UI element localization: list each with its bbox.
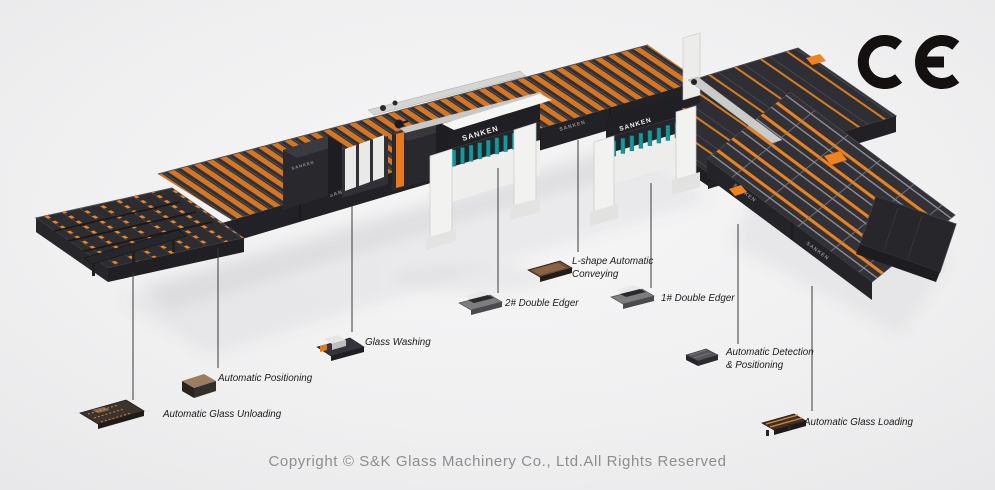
label-automatic-positioning: Automatic Positioning — [217, 373, 313, 384]
gantry-post — [683, 33, 700, 100]
label-automatic-glass-loading: Automatic Glass Loading — [803, 417, 913, 428]
label-automatic-glass-unloading: Automatic Glass Unloading — [162, 409, 282, 420]
product-line-page: SANKEN SANKEN SANKEN SANKEN SANKEN — [0, 0, 995, 490]
copyright-text: Copyright © S&K Glass Machinery Co., Ltd… — [0, 453, 995, 470]
label-glass-washing: Glass Washing — [365, 337, 431, 348]
label-1-double-edger: 1# Double Edger — [661, 293, 735, 304]
production-line-illustration: SANKEN SANKEN SANKEN SANKEN SANKEN — [0, 0, 995, 490]
label-2-double-edger: 2# Double Edger — [504, 298, 579, 309]
